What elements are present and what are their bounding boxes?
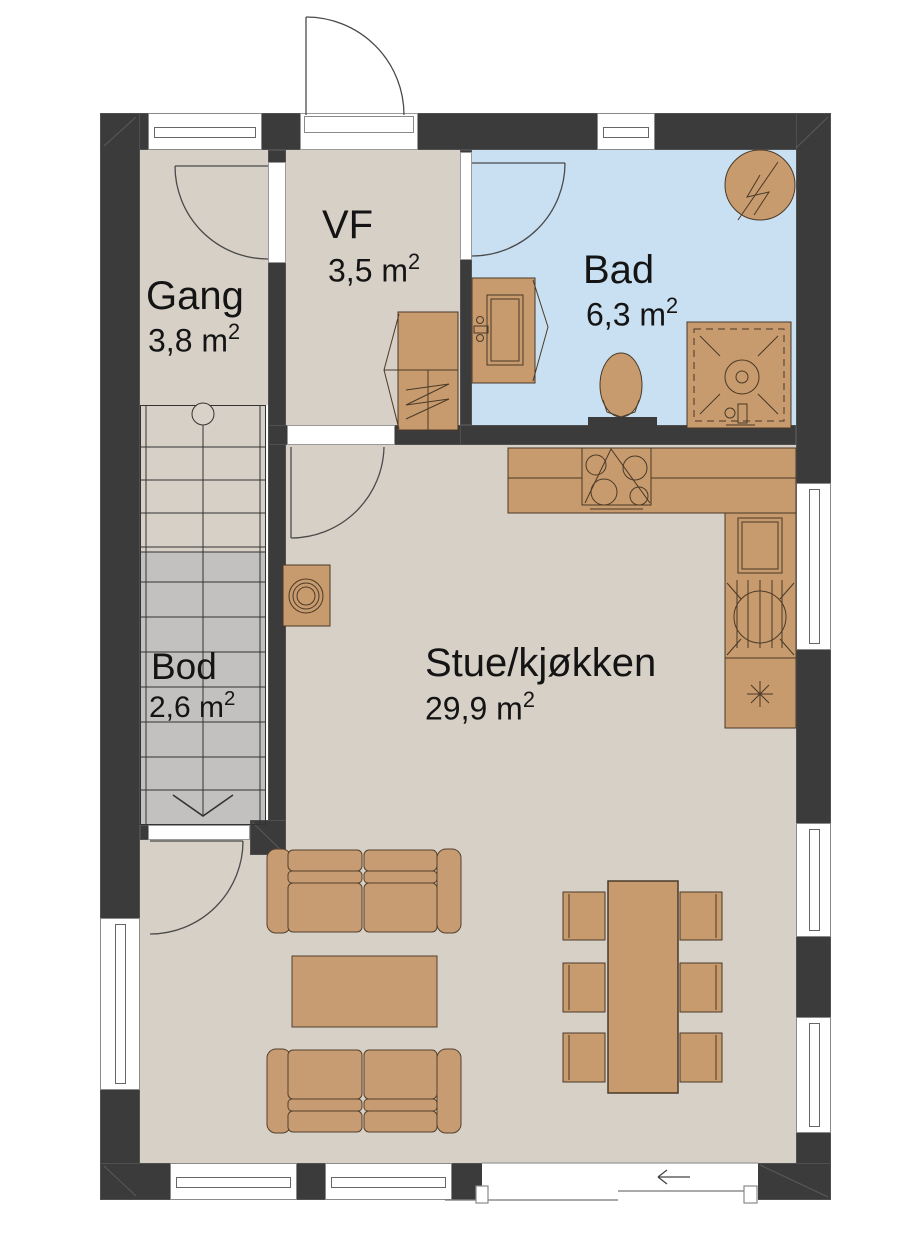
door-threshold [304, 116, 414, 133]
window-pane [809, 1023, 820, 1127]
room-area-vf: 3,5 m2 [328, 252, 420, 287]
room-label-vf: VF [322, 205, 373, 245]
floor-bod [140, 552, 266, 825]
bod-door-opening [148, 825, 250, 840]
floor-stue [286, 445, 796, 1163]
room-label-gang: Gang [146, 276, 244, 316]
window-right-kitchen [796, 483, 831, 650]
window-bottom-1 [170, 1163, 297, 1200]
area-value: 29,9 m [425, 691, 523, 727]
floor-stairs-upper [140, 405, 266, 552]
room-area-bod: 2,6 m2 [149, 690, 235, 723]
window-top-gang [148, 113, 262, 150]
bad-door-opening [460, 152, 472, 260]
area-sup: 2 [408, 249, 420, 274]
vf-stue-door-opening [287, 425, 395, 445]
room-area-stue: 29,9 m2 [425, 690, 535, 725]
window-pane [176, 1177, 291, 1188]
window-right-stue-1 [796, 823, 831, 937]
area-value: 2,6 m [149, 691, 224, 724]
gang-door-opening [268, 162, 286, 263]
entry-door-swing [306, 17, 404, 115]
area-value: 6,3 m [586, 297, 666, 333]
window-right-stue-2 [796, 1017, 831, 1133]
room-area-bad: 6,3 m2 [586, 296, 678, 331]
floor-plan: Gang 3,8 m2 VF 3,5 m2 Bad 6,3 m2 Stue/kj… [0, 0, 912, 1242]
window-pane [331, 1177, 446, 1188]
floor-stue-left [140, 840, 286, 1163]
area-sup: 2 [523, 687, 535, 712]
wall-below-bad [460, 425, 796, 445]
area-sup: 2 [224, 688, 235, 710]
room-label-bad: Bad [583, 250, 654, 290]
wall-stairs-corner [250, 820, 286, 855]
window-pane [603, 127, 649, 138]
sliding-door-opening [482, 1163, 758, 1200]
area-value: 3,5 m [328, 253, 408, 289]
window-pane [809, 829, 820, 931]
area-value: 3,8 m [148, 323, 228, 359]
window-bottom-2 [325, 1163, 452, 1200]
room-label-bod: Bod [151, 648, 217, 685]
room-label-stue: Stue/kjøkken [425, 643, 656, 683]
entry-door-opening [300, 113, 418, 150]
window-pane [154, 127, 256, 138]
area-sup: 2 [666, 293, 678, 318]
area-sup: 2 [228, 319, 240, 344]
room-area-gang: 3,8 m2 [148, 322, 240, 357]
window-pane [809, 489, 820, 644]
window-top-bad [597, 113, 655, 150]
window-pane [115, 924, 126, 1084]
window-left-stue [100, 918, 140, 1090]
